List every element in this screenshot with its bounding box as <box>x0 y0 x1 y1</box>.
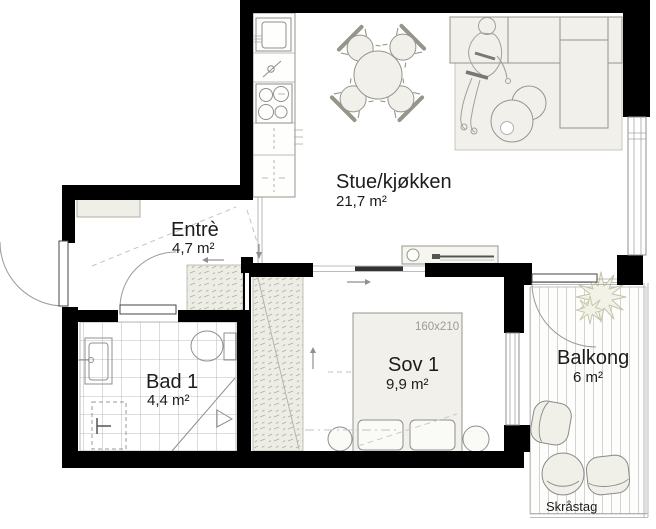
entry-door <box>0 241 68 306</box>
room-area-entre: 4,7 m² <box>172 240 215 257</box>
wall-entry-top <box>62 185 241 200</box>
down-arrow-icon <box>256 252 262 259</box>
sliding-door <box>313 266 425 272</box>
wall-bedroom-window-top <box>504 263 524 333</box>
doormat <box>187 265 243 311</box>
wall-living-bedroom-left <box>250 263 313 277</box>
bathroom-door-leaf <box>120 305 176 314</box>
bed-dimension-label: 160x210 <box>415 321 459 333</box>
floor-plan-drawing: Stue/kjøkken 21,7 m² Entrè 4,7 m² Bad 1 … <box>0 0 656 529</box>
wall-top-left-vertical <box>240 0 253 200</box>
room-area-stue: 21,7 m² <box>336 193 387 210</box>
nightstand <box>328 427 352 451</box>
room-area-bad: 4,4 m² <box>147 392 190 409</box>
floor-plan-page: Stue/kjøkken 21,7 m² Entrè 4,7 m² Bad 1 … <box>0 0 656 529</box>
ottoman <box>491 100 533 142</box>
sofa-chaise <box>560 40 608 128</box>
bedroom <box>253 272 489 452</box>
right-arrow-icon <box>365 279 371 285</box>
pillow <box>410 420 455 450</box>
wall-top <box>240 0 650 13</box>
bowl <box>501 122 514 135</box>
sliding-door-panel <box>355 267 403 272</box>
living-room-window <box>628 117 646 255</box>
wall-bedroom-window-bottom <box>504 425 530 452</box>
wall-bottom <box>62 451 524 468</box>
wall-bath-bedroom <box>237 315 251 452</box>
wall-corner-column <box>617 255 643 285</box>
wall-bath-top-left <box>75 310 118 322</box>
balcony-note-label: Skråstag <box>546 499 597 514</box>
kitchen-counter <box>253 13 295 197</box>
room-label-stue: Stue/kjøkken <box>336 171 452 193</box>
nightstand <box>463 426 489 452</box>
left-arrow-icon <box>202 257 208 263</box>
wall-right-top <box>623 0 650 117</box>
living-room <box>331 17 622 264</box>
pillow <box>358 420 403 450</box>
balcony-door-leaf <box>532 274 597 282</box>
wall-left-upper <box>62 185 75 243</box>
up-arrow-icon <box>310 347 316 353</box>
room-label-balkong: Balkong <box>557 347 629 369</box>
speaker <box>407 249 419 261</box>
bathroom-door <box>120 252 176 314</box>
room-label-bad: Bad 1 <box>146 371 198 393</box>
partition-lines <box>244 272 250 315</box>
tv <box>432 254 440 259</box>
entry-door-leaf <box>59 241 68 306</box>
wall-left-lower <box>62 307 78 452</box>
entry-hall <box>77 198 262 311</box>
room-label-sov: Sov 1 <box>388 354 439 376</box>
room-label-entre: Entrè <box>171 219 219 241</box>
balcony <box>529 272 648 518</box>
dining-table <box>354 51 402 99</box>
balcony-chair <box>585 454 631 496</box>
room-area-sov: 9,9 m² <box>386 376 429 393</box>
room-area-balkong: 6 m² <box>573 369 603 386</box>
kitchen <box>253 13 303 263</box>
balcony-table <box>542 453 584 495</box>
bedroom-window <box>506 333 519 425</box>
plant-inner <box>576 296 604 324</box>
hall-cabinet <box>77 198 140 217</box>
